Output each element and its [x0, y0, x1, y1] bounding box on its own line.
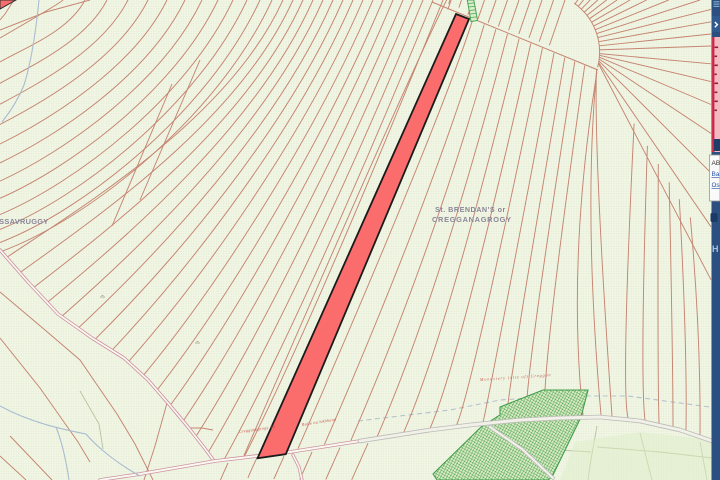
- svg-text:St. BRENDAN'S or: St. BRENDAN'S or: [435, 205, 506, 214]
- svg-text:AB: AB: [712, 160, 720, 167]
- svg-text:LISSAVRUGGY: LISSAVRUGGY: [0, 217, 49, 226]
- svg-text:Ωs: Ωs: [712, 182, 720, 189]
- svg-text:CREGGANAGROGY: CREGGANAGROGY: [432, 215, 512, 224]
- svg-text:Ba: Ba: [712, 171, 720, 178]
- svg-text:H: H: [712, 244, 719, 254]
